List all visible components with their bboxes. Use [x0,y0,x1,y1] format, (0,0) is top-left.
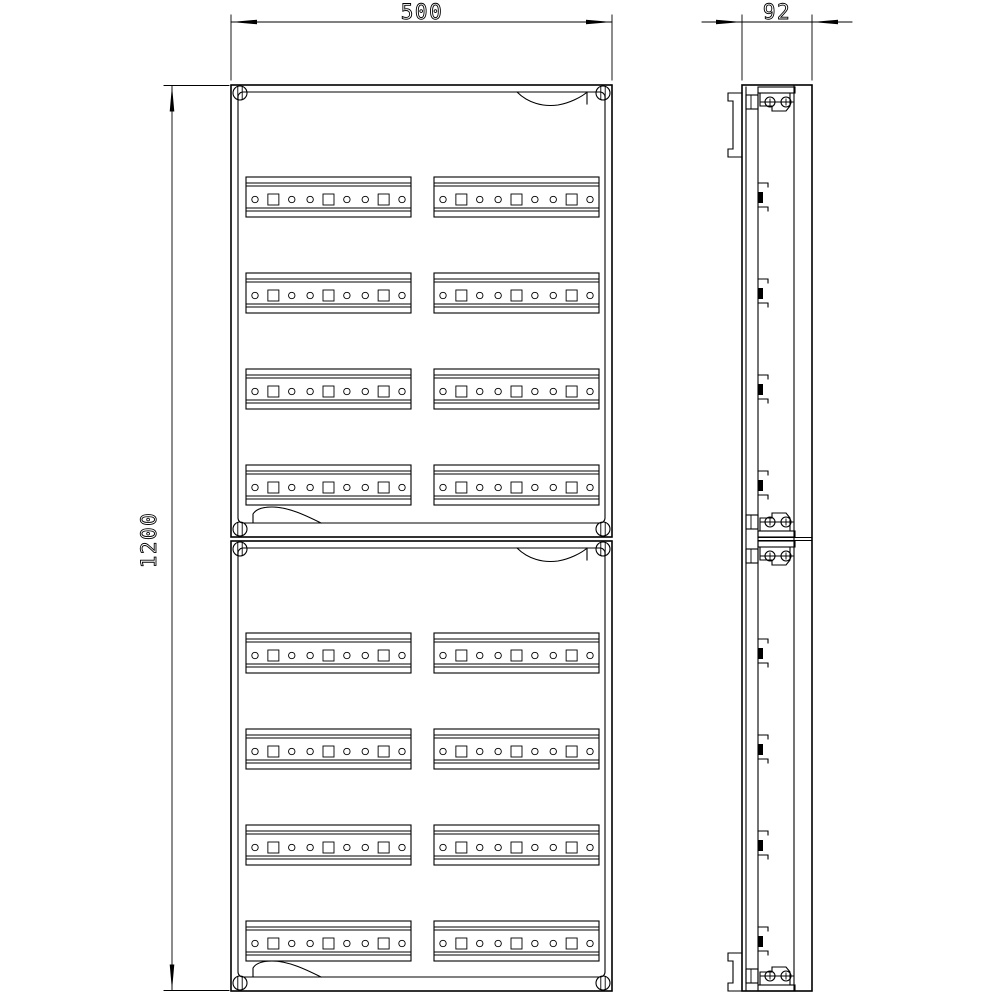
dim-arrow [812,20,838,25]
rail-hole-square [511,650,522,661]
mounting-tab [728,953,742,991]
rail-hole-round [399,844,405,850]
rail-hole-round [362,844,368,850]
rail-hole-round [344,388,350,394]
dim-arrow [231,20,257,25]
rail-clip-bottom [758,663,768,667]
corner-screw [233,522,247,536]
rail-hole-round [307,652,313,658]
rail-hole-round [399,748,405,754]
rail-hole-round [307,196,313,202]
rail-hole-round [344,484,350,490]
rail-hole-square [456,650,467,661]
dimensions: 500 92 1200 [137,0,852,991]
rail-hole-round [307,940,313,946]
rail-hole-round [362,940,368,946]
rail-hole-round [532,292,538,298]
rail-hole-square [323,482,334,493]
rail-hole-round [440,388,446,394]
rail-hole-square [378,386,389,397]
rail-hole-square [323,746,334,757]
rail-hole-round [495,196,501,202]
rail-clip-foot [758,840,763,851]
handle-recess-bottom-left [253,961,321,977]
rail-hole-round [344,748,350,754]
rail-hole-round [289,388,295,394]
rail-clip-foot [758,384,763,395]
rail-hole-round [495,388,501,394]
corner-screw [596,522,610,536]
rail-hole-round [587,748,593,754]
rail-hole-round [399,484,405,490]
dim-arrow [170,965,175,991]
rail-hole-square [268,194,279,205]
rail-hole-round [307,388,313,394]
rail-hole-square [456,290,467,301]
rail-hole-round [587,940,593,946]
cover-inner-outline [238,548,605,977]
rail-clip-bottom [758,495,768,499]
rail-hole-round [440,292,446,298]
rail-clip-top [758,735,768,739]
rail-hole-square [378,290,389,301]
rail-hole-round [550,748,556,754]
rail-hole-round [477,844,483,850]
rail-clip-bottom [758,399,768,403]
rail-hole-square [566,386,577,397]
rail-hole-round [550,196,556,202]
rail-hole-square [456,938,467,949]
depth-dimension-label: 92 [763,0,791,24]
rail-hole-round [477,748,483,754]
rail-hole-square [566,938,577,949]
rail-hole-round [495,652,501,658]
rail-hole-round [440,844,446,850]
rail-hole-square [456,746,467,757]
rail-hole-round [289,940,295,946]
drawing-svg: 500 92 1200 [0,0,1000,1000]
rail-hole-square [323,650,334,661]
rail-hole-round [344,652,350,658]
rail-hole-square [378,650,389,661]
rail-hole-square [566,290,577,301]
rail-clip-bottom [758,855,768,859]
rail-hole-square [323,290,334,301]
rail-clip-bottom [758,303,768,307]
rail-hole-round [289,292,295,298]
rail-hole-round [362,748,368,754]
cover-latch [746,969,758,983]
rail-hole-round [477,484,483,490]
rail-hole-round [440,652,446,658]
rail-hole-round [477,940,483,946]
rail-hole-round [289,196,295,202]
rail-hole-round [399,388,405,394]
rail-hole-round [550,844,556,850]
handle-recess-bottom-left [253,507,321,523]
rail-hole-square [456,386,467,397]
rail-hole-round [550,652,556,658]
rail-hole-round [587,292,593,298]
rail-hole-square [268,290,279,301]
rail-hole-round [289,484,295,490]
bracket-plate [758,541,795,547]
rail-hole-round [532,196,538,202]
handle-recess-top-right [517,548,586,561]
rail-hole-round [532,388,538,394]
rail-hole-round [440,940,446,946]
rail-hole-square [323,194,334,205]
rail-hole-round [495,844,501,850]
rail-clip-top [758,831,768,835]
rail-hole-round [307,844,313,850]
rail-hole-round [477,652,483,658]
rail-hole-square [268,386,279,397]
rail-clip-bottom [758,207,768,211]
rail-hole-round [289,844,295,850]
rail-hole-square [456,194,467,205]
rail-hole-round [362,292,368,298]
rail-hole-square [511,746,522,757]
rail-clip-foot [758,288,763,299]
handle-recess-top-right [517,92,586,105]
rail-clip-bottom [758,759,768,763]
rail-clip-top [758,183,768,187]
dim-arrow [170,86,175,112]
rail-hole-round [587,388,593,394]
bracket-plate [758,87,795,93]
mounting-tab [728,93,742,157]
rail-hole-round [532,940,538,946]
rail-hole-round [344,292,350,298]
rail-hole-square [566,194,577,205]
rail-clip-foot [758,192,763,203]
rail-hole-square [268,842,279,853]
rail-hole-round [550,484,556,490]
rail-clip-foot [758,936,763,947]
rail-hole-round [587,196,593,202]
rail-hole-square [323,842,334,853]
rail-hole-round [532,748,538,754]
rail-hole-square [268,746,279,757]
side-view [728,85,812,991]
cover-panel-outline [231,541,612,991]
rail-hole-round [252,940,258,946]
rail-clip-top [758,639,768,643]
rail-hole-round [399,940,405,946]
rail-hole-round [289,652,295,658]
rail-hole-round [495,748,501,754]
rail-hole-round [362,652,368,658]
rail-clip-foot [758,744,763,755]
cover-latch [746,549,758,563]
rail-clip-top [758,471,768,475]
rail-hole-round [550,388,556,394]
dim-arrow [716,20,742,25]
rail-hole-square [378,938,389,949]
rail-hole-round [307,748,313,754]
rail-hole-round [399,292,405,298]
rail-hole-square [378,842,389,853]
rail-hole-round [495,940,501,946]
rail-clip-bottom [758,951,768,955]
rail-hole-round [307,484,313,490]
rail-hole-round [252,652,258,658]
rail-hole-round [362,196,368,202]
rail-hole-square [566,842,577,853]
rail-hole-round [532,844,538,850]
corner-screw [596,976,610,990]
rail-hole-round [550,940,556,946]
rail-clip-foot [758,480,763,491]
cover-latch [746,95,758,109]
rail-hole-round [399,652,405,658]
rail-hole-square [511,842,522,853]
rail-hole-round [344,940,350,946]
rail-clip-top [758,927,768,931]
rail-hole-round [344,196,350,202]
bracket-plate [758,531,795,537]
rail-hole-square [378,194,389,205]
rail-hole-square [566,482,577,493]
rail-hole-round [252,196,258,202]
rail-clip-top [758,375,768,379]
cover-inner-outline [238,92,605,523]
rail-clip-top [758,279,768,283]
rail-hole-square [268,482,279,493]
corner-screw [233,976,247,990]
rail-hole-square [268,650,279,661]
rail-hole-round [495,292,501,298]
rail-hole-round [532,652,538,658]
bracket-plate [758,985,795,991]
width-dimension-label: 500 [401,0,443,24]
rail-hole-round [440,484,446,490]
rail-hole-square [323,938,334,949]
rail-hole-round [344,844,350,850]
rail-hole-round [252,748,258,754]
cover-panel-outline [231,85,612,537]
rail-hole-round [550,292,556,298]
rail-hole-square [378,746,389,757]
rail-hole-round [252,844,258,850]
rail-hole-round [495,484,501,490]
rail-hole-round [399,196,405,202]
rail-hole-square [456,842,467,853]
rail-hole-round [252,388,258,394]
rail-hole-round [477,388,483,394]
rail-hole-square [511,482,522,493]
rail-hole-round [252,484,258,490]
rail-hole-square [511,386,522,397]
technical-drawing: 500 92 1200 [0,0,1000,1000]
rail-hole-round [252,292,258,298]
rail-hole-round [477,292,483,298]
rail-hole-square [566,650,577,661]
height-dimension-label: 1200 [137,512,161,569]
rail-hole-round [440,196,446,202]
rail-hole-round [587,844,593,850]
rail-hole-square [268,938,279,949]
rail-hole-square [511,938,522,949]
rail-hole-square [511,290,522,301]
rail-hole-round [307,292,313,298]
front-view [231,85,612,991]
dim-arrow [586,20,612,25]
rail-hole-round [532,484,538,490]
rail-hole-square [378,482,389,493]
rail-clip-foot [758,648,763,659]
cover-latch [746,515,758,529]
rail-hole-round [289,748,295,754]
rail-hole-square [323,386,334,397]
rail-hole-round [587,484,593,490]
rail-hole-round [587,652,593,658]
rail-hole-round [362,388,368,394]
rail-hole-round [440,748,446,754]
rail-hole-square [566,746,577,757]
rail-hole-square [456,482,467,493]
rail-hole-round [362,484,368,490]
rail-hole-round [477,196,483,202]
rail-hole-square [511,194,522,205]
